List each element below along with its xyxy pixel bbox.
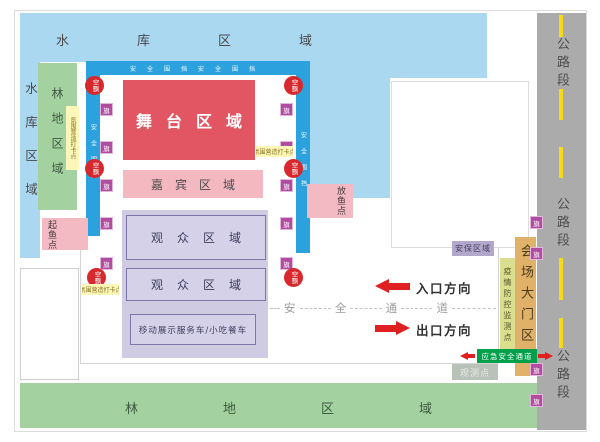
audience-area-1: 观众区域 [126, 215, 266, 260]
balloon-badge: 空飘 [284, 159, 303, 178]
road-center-line [559, 147, 563, 178]
stage-label: 舞台区域 [136, 108, 256, 132]
fish-release-point: 放鱼点 [307, 184, 353, 218]
entrance-direction-label: 入口方向 [416, 278, 472, 297]
flag-label: 旗 [103, 143, 110, 153]
flag-label: 旗 [103, 181, 110, 191]
emergency-channel: 应急安全通道 [477, 349, 537, 363]
flag-label: 旗 [283, 181, 290, 191]
audience-label-2: 观众区域 [151, 276, 255, 293]
fence-bar-top: 安全围挡 安全围挡 [86, 61, 310, 75]
observation-point: 观测点 [452, 364, 498, 380]
vehicles-area: 移动展示服务车/小吃餐车 [130, 314, 256, 345]
forest-bottom-label: 林地区域 [125, 398, 517, 417]
stage-area: 舞台区域 [123, 80, 255, 160]
road-segment-label: 公路段 [552, 197, 571, 251]
road-center-line [559, 258, 563, 300]
flag-label: 旗 [283, 259, 290, 269]
balloon-label: 空飘 [290, 162, 297, 175]
balloon-label: 空飘 [290, 79, 297, 92]
road-segment-label: 公路段 [552, 37, 571, 91]
flag-label: 旗 [283, 219, 290, 229]
audience-zone: 观众区域 观众区域 移动展示服务车/小吃餐车 [122, 210, 268, 358]
flag-label: 旗 [533, 249, 540, 259]
fence-marks: 安全围挡 [198, 64, 266, 73]
balloon-badge: 空飘 [284, 76, 303, 95]
empty-plot-box [20, 268, 79, 380]
arrow-head [545, 352, 553, 360]
dash-segment [300, 308, 331, 309]
exit-direction-label: 出口方向 [416, 320, 472, 339]
guest-area: 嘉宾区域 [123, 170, 263, 198]
flag-badge: 旗 [530, 216, 543, 229]
arrow-shaft [389, 283, 410, 290]
flag-label: 旗 [533, 218, 540, 228]
guest-label: 嘉宾区域 [151, 176, 247, 193]
security-label: 安保区域 [455, 243, 491, 254]
audience-label-1: 观众区域 [151, 229, 255, 246]
flag-badge: 旗 [100, 257, 113, 270]
arrow-head [375, 279, 389, 293]
flag-label: 旗 [283, 105, 290, 115]
road-center-line [559, 318, 563, 348]
balloon-label: 空飘 [91, 162, 98, 175]
dash-segment [350, 308, 381, 309]
safety-char: 安 [284, 300, 296, 316]
forest-left-label: 林地区域 [49, 87, 66, 187]
fish-lift-label: 起鱼点 [45, 220, 58, 250]
fish-lift-point: 起鱼点 [42, 218, 88, 250]
balloon-badge: 空飘 [85, 76, 104, 95]
road-center-line [559, 15, 563, 37]
epidemic-label: 疫情防控监测点 [502, 267, 513, 344]
flag-badge: 旗 [280, 179, 293, 192]
fence-marks: 安全围挡 [130, 64, 198, 73]
checkin-point-label-bottom: 氛围营造打卡点 [82, 284, 119, 295]
safety-char: 道 [436, 300, 448, 316]
flag-badge: 旗 [100, 179, 113, 192]
balloon-label: 空飘 [91, 79, 98, 92]
forest-area-bottom: 林地区域 [20, 383, 537, 428]
highway-road: 公路段 公路段 公路段 [537, 13, 586, 430]
dash-segment [452, 308, 496, 309]
balloon-label: 空飘 [290, 271, 297, 284]
safety-char: 全 [335, 300, 347, 316]
vehicles-label: 移动展示服务车/小吃餐车 [139, 324, 247, 336]
flag-label: 旗 [533, 396, 540, 406]
reservoir-area-right-col [310, 78, 390, 198]
flag-badge: 旗 [100, 217, 113, 230]
arrow-head [460, 352, 468, 360]
flag-badge: 旗 [280, 103, 293, 116]
audience-area-2: 观众区域 [126, 268, 266, 301]
flag-badge: 旗 [100, 103, 113, 116]
flag-label: 旗 [533, 365, 540, 375]
dash-segment [270, 308, 280, 309]
balloon-badge: 空飘 [284, 268, 303, 287]
emergency-arrow-right-icon [538, 352, 553, 360]
road-center-line [559, 89, 563, 120]
road-segment-label: 公路段 [552, 349, 571, 403]
checkin-point-label-right: 氛围营造打卡点 [256, 146, 293, 157]
arrow-head [396, 321, 410, 335]
fish-release-label: 放鱼点 [334, 186, 347, 216]
adjacent-plot [391, 81, 529, 248]
safety-char: 通 [386, 300, 398, 316]
emergency-label: 应急安全通道 [482, 351, 533, 362]
entrance-arrow-icon [375, 279, 410, 293]
epidemic-monitoring-strip: 疫情防控监测点 [500, 258, 515, 352]
arrow-shaft [375, 325, 396, 332]
arrow-shaft [468, 354, 475, 358]
reservoir-area-right-top [310, 62, 487, 78]
flag-badge: 旗 [530, 394, 543, 407]
flag-label: 旗 [103, 219, 110, 229]
reservoir-top-label: 水库区域 [56, 30, 380, 49]
flag-label: 旗 [103, 105, 110, 115]
venue-site-plan: 水库区域 水库区域 林地区域 氛围营造打卡点 安全围挡 安全围挡 安全围挡 安全… [0, 0, 600, 442]
flag-badge: 旗 [530, 247, 543, 260]
flag-badge: 旗 [100, 141, 113, 154]
flag-badge: 旗 [280, 217, 293, 230]
flag-label: 旗 [103, 259, 110, 269]
exit-arrow-icon [375, 321, 410, 335]
emergency-arrow-left-icon [460, 352, 475, 360]
checkin-point-label-left: 氛围营造打卡点 [66, 106, 79, 170]
safety-channel-line: 安 全 通 道 [266, 301, 500, 315]
fence-bar-left: 安全围挡 [86, 75, 100, 236]
security-area: 安保区域 [452, 241, 494, 256]
observation-label: 观测点 [460, 366, 490, 379]
balloon-label: 空飘 [93, 271, 100, 284]
arrow-shaft [538, 354, 545, 358]
dash-segment [401, 308, 432, 309]
flag-badge: 旗 [530, 363, 543, 376]
balloon-badge: 空飘 [85, 159, 104, 178]
